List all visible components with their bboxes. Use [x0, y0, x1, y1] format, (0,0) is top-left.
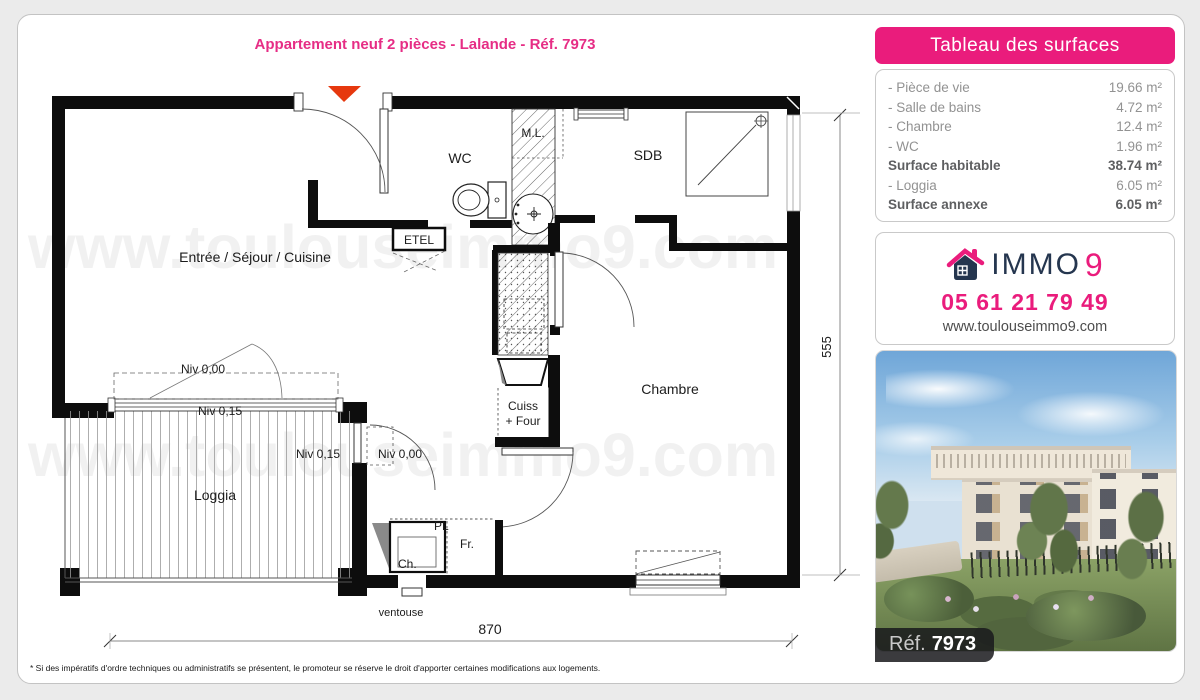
- cuiss-label-2: + Four: [505, 414, 540, 428]
- basin-icon: [513, 194, 553, 234]
- photo-roof-railing: [936, 454, 1126, 468]
- ventouse-label: ventouse: [379, 607, 424, 619]
- photo-tree: [875, 469, 922, 579]
- row-value: 1.96 m²: [1116, 137, 1162, 157]
- fr-label: Fr.: [460, 537, 474, 551]
- kitchen-hatch: [498, 253, 548, 355]
- ref-badge: Réf.7973: [875, 628, 994, 662]
- row-label: Surface annexe: [888, 195, 988, 215]
- row-label: - Chambre: [888, 117, 952, 137]
- loggia: [65, 344, 435, 582]
- photo-tree: [1112, 481, 1176, 611]
- ref-label: Réf.: [889, 633, 926, 655]
- row-label: - Salle de bains: [888, 98, 981, 118]
- table-row-total: Surface annexe6.05 m²: [888, 195, 1162, 215]
- agency-logo: IMMO 9: [876, 245, 1174, 285]
- building-photo: [875, 350, 1177, 652]
- agency-website: www.toulouseimmo9.com: [876, 319, 1174, 335]
- shower-icon: [686, 112, 768, 196]
- row-value: 6.05 m²: [1115, 195, 1162, 215]
- sdb-label: SDB: [634, 147, 663, 163]
- row-label: - WC: [888, 137, 919, 157]
- toilet-icon: [453, 182, 506, 218]
- table-row: - WC1.96 m²: [888, 137, 1162, 157]
- table-row: - Loggia6.05 m²: [888, 176, 1162, 196]
- row-label: Surface habitable: [888, 156, 1001, 176]
- niv-000-label: Niv 0,00: [378, 447, 422, 461]
- floor-plan: WC M.L. SDB ETEL Entrée / Séjour / Cuisi…: [30, 85, 860, 660]
- entrance-door: [294, 86, 392, 193]
- hood-icon: [498, 359, 548, 385]
- chambre-door-upper: [550, 248, 634, 335]
- dim-555-label: 555: [819, 336, 834, 358]
- dim-870: [104, 633, 798, 649]
- wc-label: WC: [448, 150, 471, 166]
- chambre-label: Chambre: [641, 381, 699, 397]
- ref-value: 7973: [932, 633, 977, 655]
- trap-icon: [372, 523, 390, 571]
- table-row: - Salle de bains4.72 m²: [888, 98, 1162, 118]
- niv-000-label: Niv 0,00: [181, 362, 225, 376]
- pl-label: PL: [434, 519, 449, 533]
- photo-flowers: [936, 589, 1116, 623]
- chambre-door-lower: [495, 448, 573, 575]
- table-row: - Chambre12.4 m²: [888, 117, 1162, 137]
- niv-015-label: Niv 0,15: [296, 447, 340, 461]
- photo-cloud: [886, 369, 1016, 409]
- loggia-label: Loggia: [194, 487, 236, 503]
- row-value: 4.72 m²: [1116, 98, 1162, 118]
- agency-card: IMMO 9 05 61 21 79 49 www.toulouseimmo9.…: [875, 232, 1175, 345]
- row-value: 19.66 m²: [1109, 78, 1162, 98]
- house-icon: [945, 246, 987, 284]
- entrance-arrow-icon: [328, 86, 361, 102]
- photo-cloud: [1016, 391, 1166, 437]
- etel-label: ETEL: [404, 233, 434, 247]
- table-row: - Pièce de vie19.66 m²: [888, 78, 1162, 98]
- table-row-total: Surface habitable38.74 m²: [888, 156, 1162, 176]
- agency-phone: 05 61 21 79 49: [876, 289, 1174, 316]
- ch-label: Ch.: [398, 557, 417, 571]
- footnote: * Si des impératifs d'ordre techniques o…: [30, 663, 850, 673]
- page: Appartement neuf 2 pièces - Lalande - Ré…: [0, 0, 1200, 700]
- wc-room: [308, 180, 512, 273]
- page-title: Appartement neuf 2 pièces - Lalande - Ré…: [30, 36, 820, 53]
- row-label: - Loggia: [888, 176, 937, 196]
- radiator-icon: [574, 108, 628, 120]
- surfaces-header: Tableau des surfaces: [875, 27, 1175, 64]
- cuiss-label-1: Cuiss: [508, 399, 538, 413]
- dim-870-label: 870: [478, 621, 502, 637]
- niv-015-label: Niv 0,15: [198, 404, 242, 418]
- sdb-room: [555, 108, 787, 251]
- surfaces-table: - Pièce de vie19.66 m² - Salle de bains4…: [875, 69, 1175, 222]
- loggia-window: [108, 344, 343, 412]
- brand-nine: 9: [1085, 247, 1105, 284]
- row-value: 6.05 m²: [1116, 176, 1162, 196]
- photo-tree: [1014, 471, 1084, 591]
- row-label: - Pièce de vie: [888, 78, 970, 98]
- chambre-window: [636, 551, 720, 574]
- row-value: 12.4 m²: [1116, 117, 1162, 137]
- row-value: 38.74 m²: [1108, 156, 1162, 176]
- brand-immo: IMMO: [991, 248, 1081, 282]
- sejour-label: Entrée / Séjour / Cuisine: [179, 249, 331, 265]
- ml-label: M.L.: [521, 126, 544, 140]
